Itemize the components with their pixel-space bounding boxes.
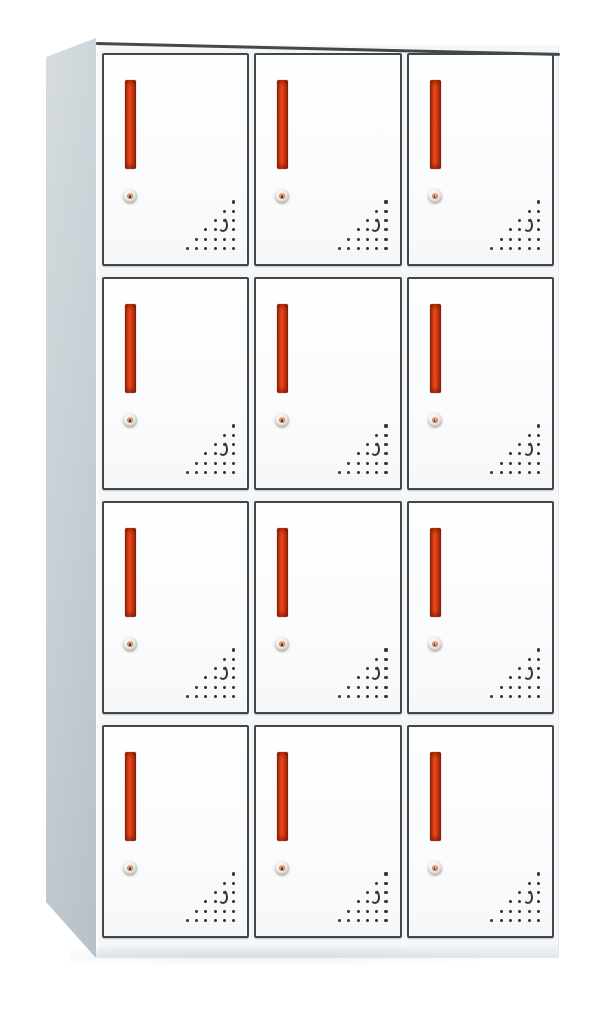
vent-hole xyxy=(537,210,540,213)
vent-hole xyxy=(537,910,540,913)
vent-hole xyxy=(384,424,387,427)
vent-hole xyxy=(338,247,341,250)
vent-hole xyxy=(500,686,503,689)
keyhole-icon xyxy=(127,865,133,871)
locker-door xyxy=(407,277,554,490)
vent-hole xyxy=(186,919,189,922)
vent-hole xyxy=(223,686,226,689)
vent-hole xyxy=(204,462,207,465)
vent-hole xyxy=(528,919,531,922)
vent-hole xyxy=(375,658,378,661)
vent-crescent-slot xyxy=(521,889,534,905)
vent-hole xyxy=(232,200,235,203)
vent-hole xyxy=(195,462,198,465)
vent-hole xyxy=(232,648,235,651)
vent-hole xyxy=(537,462,540,465)
vent-hole xyxy=(509,919,512,922)
vent-hole xyxy=(347,686,350,689)
vent-hole xyxy=(204,910,207,913)
vent-hole xyxy=(223,658,226,661)
vent-hole xyxy=(357,228,360,231)
vent-hole xyxy=(223,238,226,241)
vent-hole xyxy=(214,900,217,903)
locker-door xyxy=(102,277,249,490)
vent-hole xyxy=(500,919,503,922)
vent-hole xyxy=(357,238,360,241)
vent-hole xyxy=(186,471,189,474)
vent-hole xyxy=(509,686,512,689)
vent-hole xyxy=(518,471,521,474)
keyhole-icon xyxy=(127,193,133,199)
vent-hole xyxy=(537,648,540,651)
keyhole-icon xyxy=(432,865,438,871)
cabinet-front-face xyxy=(96,45,559,958)
vent-hole xyxy=(232,219,235,222)
vent-hole xyxy=(204,228,207,231)
vent-hole xyxy=(537,872,540,875)
door-grid xyxy=(102,53,554,938)
vent-hole xyxy=(528,238,531,241)
vent-hole xyxy=(232,872,235,875)
vent-hole xyxy=(509,900,512,903)
locker-door xyxy=(407,53,554,266)
vent-hole xyxy=(518,247,521,250)
vent-hole xyxy=(518,676,521,679)
vent-hole xyxy=(509,247,512,250)
vent-hole xyxy=(214,247,217,250)
vent-holes xyxy=(183,870,235,922)
cam-lock xyxy=(275,189,289,203)
vent-hole xyxy=(232,919,235,922)
vent-hole xyxy=(537,200,540,203)
vent-hole xyxy=(366,228,369,231)
locker-door xyxy=(254,53,401,266)
vent-hole xyxy=(204,900,207,903)
vent-hole xyxy=(500,238,503,241)
vent-hole xyxy=(528,434,531,437)
vent-hole xyxy=(537,676,540,679)
door-handle xyxy=(277,752,288,841)
vent-hole xyxy=(384,900,387,903)
cam-lock xyxy=(275,413,289,427)
door-handle xyxy=(277,528,288,617)
vent-hole xyxy=(537,686,540,689)
vent-hole xyxy=(357,676,360,679)
cam-lock xyxy=(428,413,442,427)
vent-hole xyxy=(204,686,207,689)
vent-hole xyxy=(528,471,531,474)
vent-hole xyxy=(537,434,540,437)
keyhole-icon xyxy=(279,865,285,871)
vent-hole xyxy=(375,695,378,698)
vent-hole xyxy=(232,658,235,661)
vent-hole xyxy=(528,882,531,885)
door-handle xyxy=(430,752,441,841)
vent-hole xyxy=(357,462,360,465)
vent-hole xyxy=(204,919,207,922)
vent-crescent-slot xyxy=(216,665,229,681)
vent-hole xyxy=(366,910,369,913)
vent-hole xyxy=(214,471,217,474)
vent-crescent-slot xyxy=(216,441,229,457)
vent-hole xyxy=(223,695,226,698)
vent-hole xyxy=(186,247,189,250)
vent-hole xyxy=(500,910,503,913)
vent-hole xyxy=(384,658,387,661)
vent-hole xyxy=(232,686,235,689)
vent-hole xyxy=(384,434,387,437)
vent-hole xyxy=(357,452,360,455)
vent-hole xyxy=(537,658,540,661)
vent-hole xyxy=(366,462,369,465)
vent-hole xyxy=(232,471,235,474)
vent-hole xyxy=(509,228,512,231)
vent-hole xyxy=(347,238,350,241)
vent-hole xyxy=(528,462,531,465)
locker-door xyxy=(102,725,249,938)
vent-holes xyxy=(488,422,540,474)
vent-hole xyxy=(384,891,387,894)
vent-hole xyxy=(195,247,198,250)
vent-hole xyxy=(357,247,360,250)
cam-lock xyxy=(428,189,442,203)
vent-hole xyxy=(195,238,198,241)
vent-hole xyxy=(214,228,217,231)
vent-hole xyxy=(537,919,540,922)
vent-hole xyxy=(357,686,360,689)
vent-hole xyxy=(232,882,235,885)
vent-hole xyxy=(384,210,387,213)
vent-hole xyxy=(384,443,387,446)
vent-hole xyxy=(232,247,235,250)
vent-hole xyxy=(375,247,378,250)
vent-hole xyxy=(232,228,235,231)
vent-hole xyxy=(232,676,235,679)
locker-door xyxy=(102,53,249,266)
vent-crescent-slot xyxy=(521,217,534,233)
vent-hole xyxy=(384,686,387,689)
vent-hole xyxy=(384,247,387,250)
vent-hole xyxy=(232,452,235,455)
vent-hole xyxy=(528,210,531,213)
vent-hole xyxy=(537,228,540,231)
vent-hole xyxy=(375,462,378,465)
vent-hole xyxy=(375,919,378,922)
vent-hole xyxy=(384,667,387,670)
vent-hole xyxy=(528,658,531,661)
vent-hole xyxy=(384,882,387,885)
vent-hole xyxy=(490,695,493,698)
vent-hole xyxy=(232,210,235,213)
vent-hole xyxy=(357,695,360,698)
vent-hole xyxy=(384,200,387,203)
vent-hole xyxy=(347,919,350,922)
vent-hole xyxy=(518,238,521,241)
vent-hole xyxy=(366,919,369,922)
vent-crescent-slot xyxy=(521,441,534,457)
vent-hole xyxy=(232,695,235,698)
vent-hole xyxy=(384,228,387,231)
vent-hole xyxy=(518,686,521,689)
vent-hole xyxy=(509,910,512,913)
vent-holes xyxy=(336,646,388,698)
vent-hole xyxy=(384,676,387,679)
vent-hole xyxy=(509,452,512,455)
vent-hole xyxy=(366,900,369,903)
vent-hole xyxy=(366,695,369,698)
keyhole-icon xyxy=(127,417,133,423)
vent-hole xyxy=(384,471,387,474)
vent-hole xyxy=(537,695,540,698)
vent-hole xyxy=(509,462,512,465)
vent-hole xyxy=(204,471,207,474)
vent-hole xyxy=(204,238,207,241)
vent-holes xyxy=(488,646,540,698)
vent-hole xyxy=(223,910,226,913)
vent-hole xyxy=(537,238,540,241)
vent-hole xyxy=(518,919,521,922)
vent-hole xyxy=(537,667,540,670)
vent-hole xyxy=(528,910,531,913)
vent-hole xyxy=(375,910,378,913)
vent-hole xyxy=(347,695,350,698)
vent-crescent-slot xyxy=(368,217,381,233)
vent-hole xyxy=(366,676,369,679)
vent-hole xyxy=(509,238,512,241)
cam-lock xyxy=(428,637,442,651)
vent-hole xyxy=(357,919,360,922)
vent-hole xyxy=(518,910,521,913)
keyhole-icon xyxy=(279,193,285,199)
vent-hole xyxy=(232,900,235,903)
vent-hole xyxy=(214,695,217,698)
vent-hole xyxy=(375,238,378,241)
vent-hole xyxy=(347,462,350,465)
vent-crescent-slot xyxy=(368,665,381,681)
ground-shadow xyxy=(70,948,540,966)
door-handle xyxy=(125,528,136,617)
vent-hole xyxy=(214,910,217,913)
vent-hole xyxy=(347,910,350,913)
keyhole-icon xyxy=(432,641,438,647)
vent-hole xyxy=(204,676,207,679)
keyhole-icon xyxy=(279,417,285,423)
vent-hole xyxy=(509,695,512,698)
vent-hole xyxy=(195,695,198,698)
vent-hole xyxy=(232,910,235,913)
vent-holes xyxy=(336,870,388,922)
door-handle xyxy=(430,304,441,393)
vent-hole xyxy=(384,872,387,875)
vent-hole xyxy=(214,919,217,922)
cam-lock xyxy=(123,637,137,651)
vent-hole xyxy=(214,686,217,689)
keyhole-icon xyxy=(279,641,285,647)
vent-hole xyxy=(223,471,226,474)
vent-hole xyxy=(366,238,369,241)
vent-hole xyxy=(232,667,235,670)
door-handle xyxy=(277,80,288,169)
door-handle xyxy=(125,80,136,169)
cam-lock xyxy=(123,413,137,427)
locker-door xyxy=(407,725,554,938)
vent-hole xyxy=(384,910,387,913)
vent-hole xyxy=(537,891,540,894)
vent-hole xyxy=(214,462,217,465)
vent-hole xyxy=(500,471,503,474)
vent-hole xyxy=(223,919,226,922)
vent-hole xyxy=(518,228,521,231)
vent-hole xyxy=(357,471,360,474)
vent-hole xyxy=(232,891,235,894)
vent-hole xyxy=(204,247,207,250)
vent-hole xyxy=(384,462,387,465)
vent-hole xyxy=(186,695,189,698)
vent-crescent-slot xyxy=(521,665,534,681)
vent-hole xyxy=(537,443,540,446)
vent-hole xyxy=(375,882,378,885)
vent-crescent-slot xyxy=(216,889,229,905)
vent-hole xyxy=(509,676,512,679)
vent-hole xyxy=(223,882,226,885)
vent-hole xyxy=(384,219,387,222)
cam-lock xyxy=(123,861,137,875)
vent-hole xyxy=(528,686,531,689)
vent-hole xyxy=(384,919,387,922)
vent-hole xyxy=(232,462,235,465)
vent-hole xyxy=(500,462,503,465)
product-photo-canvas xyxy=(0,0,605,1009)
vent-holes xyxy=(336,198,388,250)
vent-hole xyxy=(223,247,226,250)
door-handle xyxy=(125,752,136,841)
cam-lock xyxy=(123,189,137,203)
vent-hole xyxy=(537,247,540,250)
vent-hole xyxy=(232,434,235,437)
vent-hole xyxy=(384,695,387,698)
vent-hole xyxy=(509,471,512,474)
vent-hole xyxy=(537,471,540,474)
vent-hole xyxy=(347,471,350,474)
vent-hole xyxy=(500,695,503,698)
locker-door xyxy=(254,277,401,490)
vent-hole xyxy=(490,471,493,474)
vent-hole xyxy=(375,471,378,474)
vent-hole xyxy=(223,210,226,213)
vent-hole xyxy=(338,919,341,922)
vent-hole xyxy=(518,462,521,465)
vent-holes xyxy=(488,198,540,250)
vent-holes xyxy=(183,646,235,698)
vent-holes xyxy=(183,198,235,250)
vent-holes xyxy=(183,422,235,474)
vent-hole xyxy=(223,462,226,465)
vent-hole xyxy=(195,686,198,689)
vent-hole xyxy=(537,219,540,222)
keyhole-icon xyxy=(127,641,133,647)
vent-hole xyxy=(528,695,531,698)
vent-holes xyxy=(488,870,540,922)
vent-crescent-slot xyxy=(216,217,229,233)
vent-hole xyxy=(490,919,493,922)
cam-lock xyxy=(275,861,289,875)
vent-hole xyxy=(366,471,369,474)
vent-hole xyxy=(500,247,503,250)
locker-cabinet xyxy=(0,0,605,1009)
vent-hole xyxy=(214,452,217,455)
vent-hole xyxy=(357,910,360,913)
locker-door xyxy=(254,501,401,714)
vent-hole xyxy=(232,443,235,446)
vent-hole xyxy=(384,648,387,651)
vent-hole xyxy=(223,434,226,437)
vent-hole xyxy=(347,247,350,250)
vent-hole xyxy=(375,686,378,689)
vent-hole xyxy=(204,695,207,698)
door-handle xyxy=(430,80,441,169)
door-handle xyxy=(430,528,441,617)
vent-hole xyxy=(338,471,341,474)
keyhole-icon xyxy=(432,417,438,423)
vent-hole xyxy=(518,695,521,698)
vent-hole xyxy=(357,900,360,903)
vent-hole xyxy=(214,676,217,679)
locker-door xyxy=(407,501,554,714)
vent-hole xyxy=(375,210,378,213)
door-handle xyxy=(277,304,288,393)
vent-hole xyxy=(366,452,369,455)
cam-lock xyxy=(275,637,289,651)
vent-hole xyxy=(384,452,387,455)
locker-door xyxy=(254,725,401,938)
vent-hole xyxy=(366,686,369,689)
vent-hole xyxy=(490,247,493,250)
vent-hole xyxy=(338,695,341,698)
door-handle xyxy=(125,304,136,393)
vent-hole xyxy=(537,900,540,903)
vent-hole xyxy=(537,882,540,885)
vent-hole xyxy=(384,238,387,241)
vent-hole xyxy=(537,424,540,427)
vent-hole xyxy=(518,900,521,903)
vent-hole xyxy=(375,434,378,437)
vent-hole xyxy=(214,238,217,241)
cabinet-side-panel xyxy=(46,38,96,958)
vent-hole xyxy=(528,247,531,250)
vent-hole xyxy=(195,910,198,913)
vent-crescent-slot xyxy=(368,889,381,905)
cam-lock xyxy=(428,861,442,875)
vent-hole xyxy=(195,471,198,474)
locker-door xyxy=(102,501,249,714)
vent-hole xyxy=(195,919,198,922)
vent-hole xyxy=(232,424,235,427)
vent-holes xyxy=(336,422,388,474)
vent-hole xyxy=(204,452,207,455)
vent-hole xyxy=(518,452,521,455)
keyhole-icon xyxy=(432,193,438,199)
vent-hole xyxy=(366,247,369,250)
vent-hole xyxy=(232,238,235,241)
vent-crescent-slot xyxy=(368,441,381,457)
vent-hole xyxy=(537,452,540,455)
